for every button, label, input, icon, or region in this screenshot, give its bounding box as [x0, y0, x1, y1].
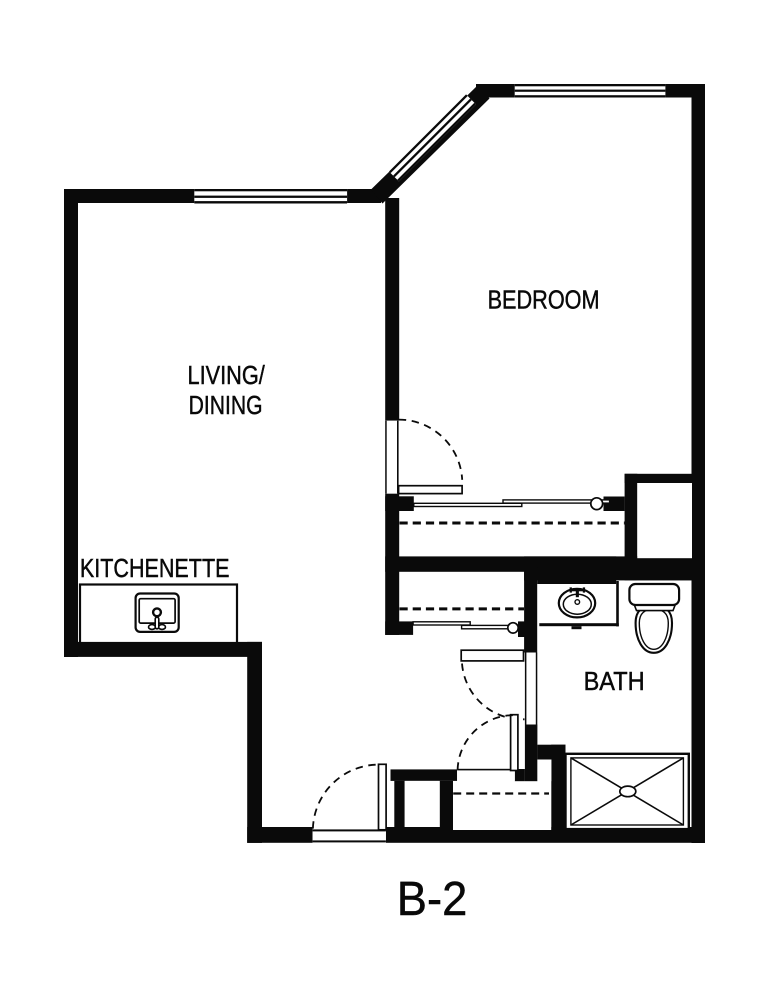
svg-text:KITCHENETTE: KITCHENETTE: [80, 553, 230, 583]
svg-text:BEDROOM: BEDROOM: [488, 287, 600, 315]
svg-text:DINING: DINING: [189, 392, 263, 420]
svg-text:LIVING/: LIVING/: [188, 362, 266, 390]
svg-text:BATH: BATH: [584, 666, 645, 696]
svg-text:B-2: B-2: [397, 872, 468, 926]
